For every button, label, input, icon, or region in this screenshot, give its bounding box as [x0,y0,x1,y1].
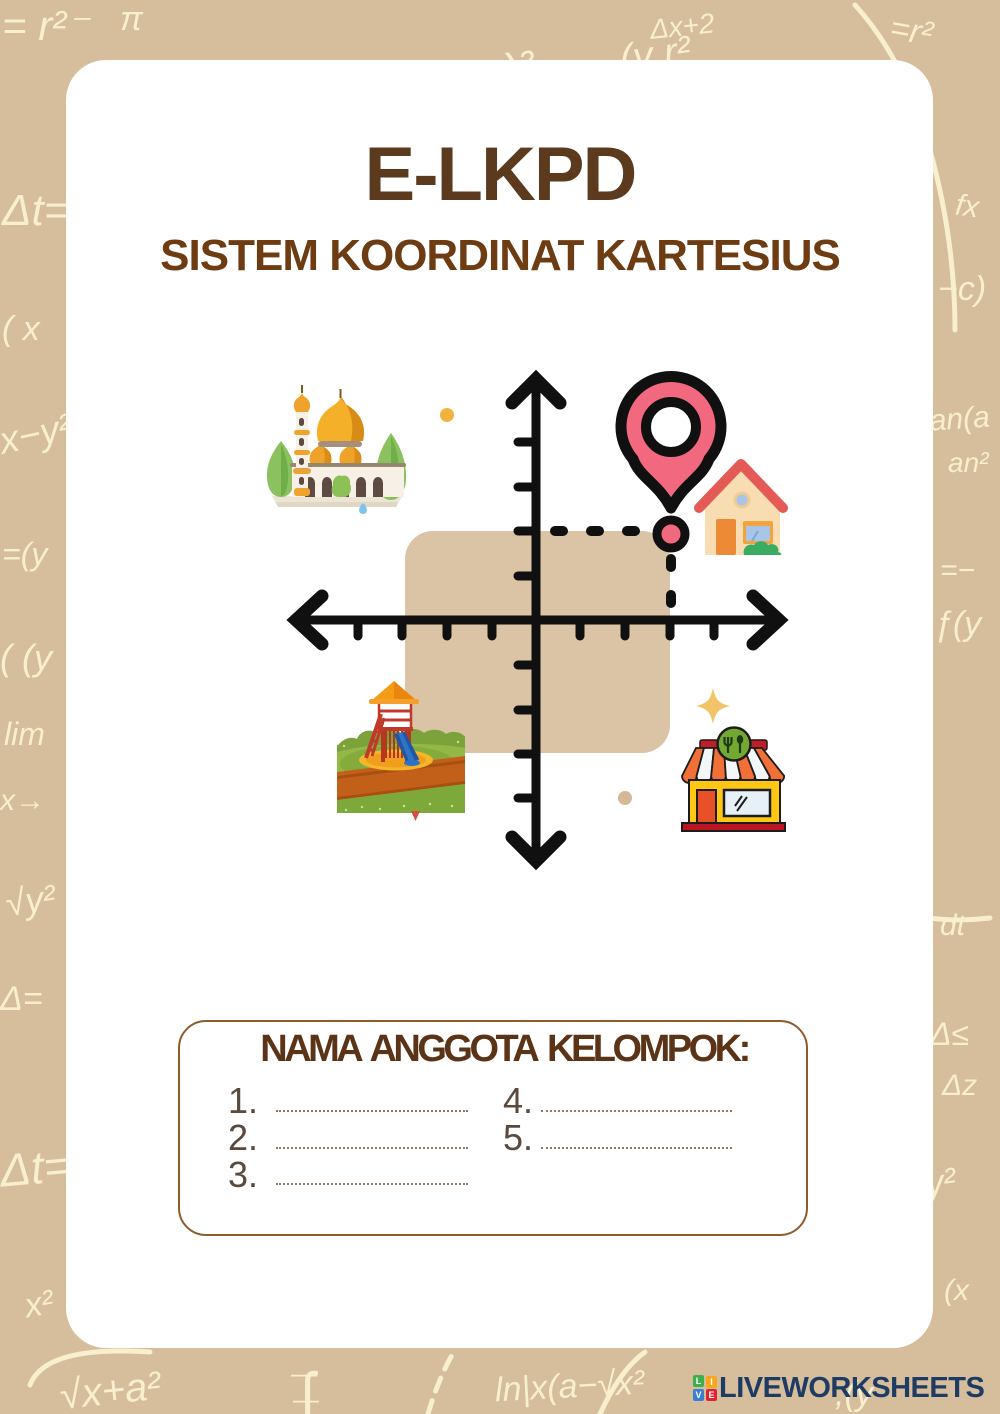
svg-text:√x+a²: √x+a² [58,1364,165,1414]
svg-text:=r²: =r² [887,9,937,54]
svg-text:= r²⁻: = r²⁻ [2,2,91,49]
svg-text:lim: lim [4,716,45,752]
svg-text:Δx+2: Δx+2 [647,7,716,45]
svg-text:dt: dt [940,909,967,942]
svg-text:Δ=: Δ= [0,980,43,1018]
svg-text:ƒ(y: ƒ(y [934,605,983,644]
svg-text:( x: ( x [2,310,41,348]
svg-text:Δz: Δz [941,1069,977,1102]
svg-text:Δ≤: Δ≤ [929,1016,969,1052]
svg-text:=(y: =(y [2,536,49,572]
svg-text:π: π [120,0,144,38]
svg-text:an²: an² [948,447,990,478]
svg-text:an(a: an(a [929,401,991,438]
svg-text:x→: x→ [0,784,45,817]
svg-text:—: — [292,1384,320,1414]
svg-text:√y²: √y² [3,876,60,924]
svg-text:=−: =− [940,554,975,587]
svg-text:(x: (x [944,1274,970,1307]
svg-text:Δt=: Δt= [0,1139,73,1197]
svg-text:( (y: ( (y [0,637,54,678]
svg-text:x²: x² [20,1283,58,1326]
